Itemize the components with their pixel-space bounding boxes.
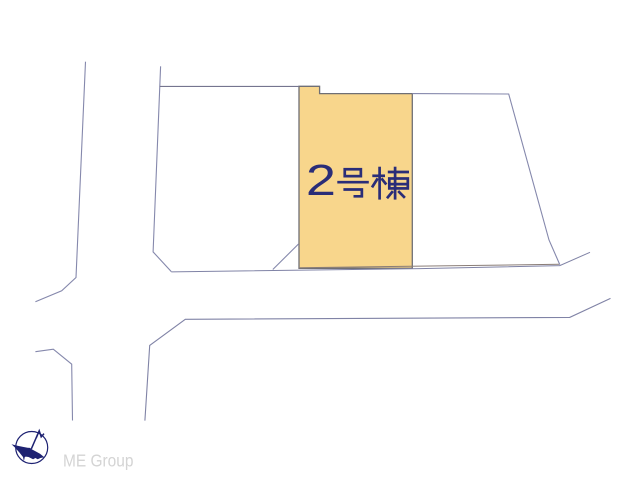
svg-text:2: 2	[306, 156, 336, 205]
svg-text:ME Group: ME Group	[63, 451, 134, 471]
